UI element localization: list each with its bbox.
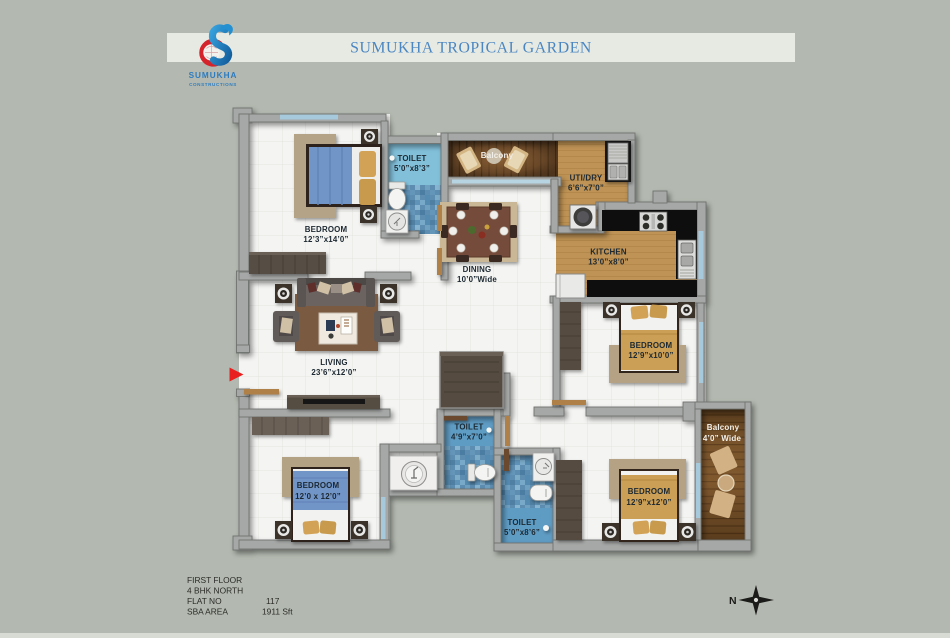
svg-text:117: 117 [266,596,280,606]
svg-text:Balcony: Balcony [707,423,740,432]
svg-text:FLAT NO: FLAT NO [187,596,222,606]
svg-text:Balcony: Balcony [481,151,514,160]
svg-text:1911 Sft: 1911 Sft [262,607,293,617]
svg-text:4’9”x7’0”: 4’9”x7’0” [451,433,487,442]
svg-text:N: N [729,595,737,607]
svg-text:BEDROOM: BEDROOM [305,225,348,234]
svg-text:BEDROOM: BEDROOM [297,481,340,490]
svg-text:12’3”x14’0”: 12’3”x14’0” [303,235,348,244]
svg-text:4’0” Wide: 4’0” Wide [703,434,742,443]
svg-text:SUMUKHA: SUMUKHA [189,71,238,80]
svg-text:BEDROOM: BEDROOM [630,341,673,350]
svg-text:BEDROOM: BEDROOM [628,487,671,496]
svg-text:4 BHK NORTH: 4 BHK NORTH [187,586,243,596]
svg-text:KITCHEN: KITCHEN [590,248,627,257]
svg-text:TOILET: TOILET [397,154,426,163]
svg-text:13’0”x8’0”: 13’0”x8’0” [588,258,629,267]
svg-text:TOILET: TOILET [454,423,483,432]
svg-text:TOILET: TOILET [507,518,536,527]
svg-text:10’0”Wide: 10’0”Wide [457,275,497,284]
svg-text:23’6”x12’0”: 23’6”x12’0” [311,368,356,377]
svg-text:SUMUKHA TROPICAL GARDEN: SUMUKHA TROPICAL GARDEN [350,40,592,57]
svg-text:DINING: DINING [463,265,492,274]
svg-text:SBA AREA: SBA AREA [187,607,228,617]
svg-text:LIVING: LIVING [320,358,348,367]
svg-text:5’0”x8’6”: 5’0”x8’6” [504,528,540,537]
svg-text:12’9”x10’0”: 12’9”x10’0” [628,351,673,360]
svg-text:5’0”x8’3”: 5’0”x8’3” [394,164,430,173]
svg-text:12’9”x12’0”: 12’9”x12’0” [626,498,671,507]
svg-text:FIRST FLOOR: FIRST FLOOR [187,575,242,585]
svg-text:UTI/DRY: UTI/DRY [570,174,603,183]
svg-text:6’6”x7’0”: 6’6”x7’0” [568,184,604,193]
svg-text:12’0 x 12’0”: 12’0 x 12’0” [295,492,341,501]
svg-text:CONSTRUCTIONS: CONSTRUCTIONS [189,82,237,87]
